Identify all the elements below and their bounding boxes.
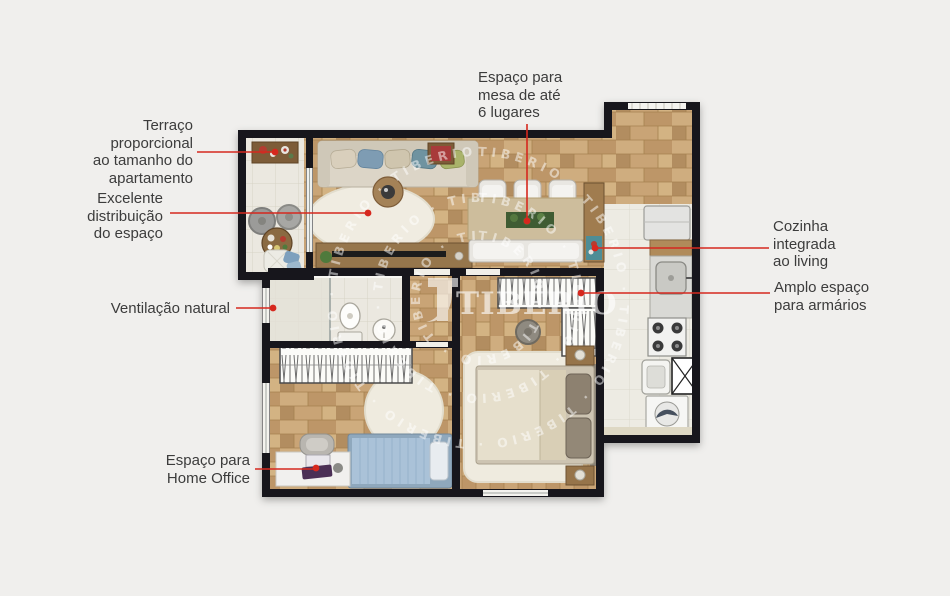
callout-dot-dining bbox=[524, 218, 531, 225]
callout-dot-terrace bbox=[272, 149, 279, 156]
callout-dot-kitchen bbox=[592, 245, 599, 252]
callout-dot-distribution bbox=[365, 210, 372, 217]
label-line: Ventilação natural bbox=[111, 300, 230, 318]
entry-door bbox=[628, 103, 686, 109]
entry-floor bbox=[604, 110, 692, 206]
callout-dot-home-office bbox=[313, 465, 320, 472]
label-dining: Espaço para mesa de até 6 lugares bbox=[478, 69, 562, 122]
label-terrace: Terraço proporcional ao tamanho do apart… bbox=[93, 117, 193, 187]
callout-dot-ventilation bbox=[270, 305, 277, 312]
label-line: Espaço para bbox=[478, 69, 562, 87]
label-line: 6 lugares bbox=[478, 104, 562, 122]
label-line: Espaço para bbox=[166, 452, 250, 470]
service-sill bbox=[604, 427, 692, 435]
label-line: proporcional bbox=[93, 135, 193, 153]
label-line: apartamento bbox=[93, 170, 193, 188]
label-distribution: Excelente distribuição do espaço bbox=[87, 190, 163, 243]
label-line: para armários bbox=[774, 297, 869, 315]
label-line: distribuição bbox=[87, 208, 163, 226]
sofa-pillow bbox=[330, 149, 357, 170]
label-line: mesa de até bbox=[478, 87, 562, 105]
sofa-pillow bbox=[357, 149, 383, 169]
label-home-office: Espaço para Home Office bbox=[166, 452, 250, 487]
label-ventilation: Ventilação natural bbox=[111, 300, 230, 318]
floorplan-page: TIBERIO · TIBERIO · TIBERIO · TIBERIO · … bbox=[0, 0, 950, 596]
callout-dot-closets bbox=[578, 290, 585, 297]
bed-pillow bbox=[566, 418, 591, 458]
label-line: do espaço bbox=[87, 225, 163, 243]
label-line: ao tamanho do bbox=[93, 152, 193, 170]
label-line: Cozinha bbox=[773, 218, 836, 236]
label-line: Terraço bbox=[93, 117, 193, 135]
label-line: integrada bbox=[773, 236, 836, 254]
label-line: ao living bbox=[773, 253, 836, 271]
label-line: Amplo espaço bbox=[774, 279, 869, 297]
label-line: Home Office bbox=[166, 470, 250, 488]
brand-logo-text: TIBÉRIO bbox=[456, 284, 618, 322]
fridge bbox=[644, 206, 690, 240]
label-kitchen: Cozinha integrada ao living bbox=[773, 218, 836, 271]
label-closets: Amplo espaço para armários bbox=[774, 279, 869, 314]
bedroom2-door bbox=[466, 269, 500, 275]
label-line: Excelente bbox=[87, 190, 163, 208]
